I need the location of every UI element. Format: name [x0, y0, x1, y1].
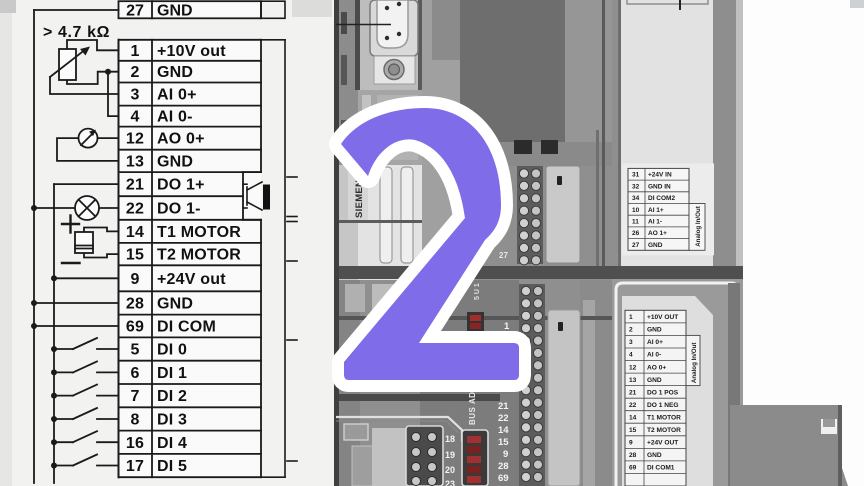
svg-text:9: 9: [503, 449, 508, 460]
svg-text:5 U 1: 5 U 1: [474, 283, 481, 300]
svg-text:27: 27: [632, 242, 640, 249]
svg-text:6: 6: [130, 365, 139, 382]
svg-text:+10V out: +10V out: [157, 43, 226, 60]
svg-text:DI COM: DI COM: [157, 319, 216, 336]
svg-text:21: 21: [629, 389, 637, 396]
svg-text:1: 1: [130, 43, 139, 60]
svg-text:DO 1 POS: DO 1 POS: [647, 389, 679, 396]
svg-text:69: 69: [126, 319, 144, 336]
svg-text:DO 1+: DO 1+: [157, 177, 205, 194]
svg-text:AO 0+: AO 0+: [157, 131, 205, 148]
svg-text:1: 1: [504, 321, 510, 332]
svg-text:DI COM1: DI COM1: [647, 465, 675, 472]
svg-text:AI 0-: AI 0-: [647, 352, 661, 359]
svg-text:DI 2: DI 2: [157, 388, 187, 405]
svg-text:14: 14: [498, 425, 509, 436]
svg-text:GND: GND: [157, 3, 193, 20]
svg-text:13: 13: [629, 377, 637, 384]
svg-text:23: 23: [445, 479, 455, 486]
svg-text:GND IN: GND IN: [648, 183, 671, 190]
svg-text:4: 4: [629, 352, 633, 359]
svg-text:21: 21: [126, 177, 144, 194]
svg-text:14: 14: [629, 415, 637, 422]
svg-text:GND: GND: [157, 296, 193, 313]
svg-text:32: 32: [632, 183, 640, 190]
svg-text:+24V OUT: +24V OUT: [647, 440, 678, 447]
svg-text:DI 0: DI 0: [157, 342, 187, 359]
svg-text:10: 10: [632, 207, 640, 214]
svg-text:28: 28: [498, 461, 509, 472]
svg-text:8: 8: [130, 412, 139, 429]
svg-text:22: 22: [498, 413, 509, 424]
svg-text:11: 11: [632, 218, 639, 225]
svg-text:DO 1-: DO 1-: [157, 201, 201, 218]
svg-text:2: 2: [130, 64, 139, 81]
svg-text:GND: GND: [647, 452, 662, 459]
svg-text:13: 13: [126, 154, 144, 171]
svg-text:20: 20: [445, 465, 455, 475]
svg-text:28: 28: [629, 452, 637, 459]
svg-text:15: 15: [498, 437, 509, 448]
svg-text:9: 9: [629, 440, 633, 447]
svg-text:GND: GND: [157, 64, 193, 81]
svg-text:15: 15: [629, 427, 637, 434]
svg-text:AI 0+: AI 0+: [157, 87, 197, 104]
svg-text:AI 1+: AI 1+: [648, 207, 664, 214]
svg-text:28: 28: [126, 296, 144, 313]
svg-text:3: 3: [629, 339, 633, 346]
svg-text:3: 3: [130, 87, 139, 104]
svg-text:Analog In/Out: Analog In/Out: [691, 343, 698, 384]
svg-text:19: 19: [445, 450, 455, 460]
svg-text:> 4.7 kΩ: > 4.7 kΩ: [43, 24, 110, 41]
svg-text:T1 MOTOR: T1 MOTOR: [157, 224, 241, 241]
svg-text:4: 4: [130, 109, 139, 126]
svg-text:27: 27: [126, 3, 144, 20]
svg-text:AO 0+: AO 0+: [647, 364, 666, 371]
svg-text:GND: GND: [647, 377, 662, 384]
svg-text:31: 31: [632, 172, 640, 179]
svg-text:69: 69: [498, 473, 509, 484]
svg-text:+10V OUT: +10V OUT: [647, 314, 678, 321]
svg-text:26: 26: [632, 230, 640, 237]
svg-text:15: 15: [126, 247, 144, 264]
svg-text:DI 1: DI 1: [157, 365, 187, 382]
svg-text:22: 22: [126, 201, 144, 218]
svg-text:T2 MOTOR: T2 MOTOR: [647, 427, 681, 434]
svg-text:DI 3: DI 3: [157, 412, 187, 429]
svg-text:5: 5: [130, 342, 139, 359]
svg-text:27: 27: [499, 251, 508, 260]
svg-text:GND: GND: [648, 242, 663, 249]
svg-text:+24V out: +24V out: [157, 271, 226, 288]
svg-text:T1 MOTOR: T1 MOTOR: [647, 415, 681, 422]
svg-text:22: 22: [629, 402, 637, 409]
svg-text:AO 1+: AO 1+: [648, 230, 667, 237]
svg-text:9: 9: [130, 271, 139, 288]
svg-text:GND: GND: [157, 154, 193, 171]
svg-text:GND: GND: [647, 327, 662, 334]
svg-text:DI 4: DI 4: [157, 435, 187, 452]
svg-text:BUS AD: BUS AD: [468, 392, 477, 425]
svg-text:34: 34: [632, 195, 640, 202]
svg-text:+24V IN: +24V IN: [648, 172, 672, 179]
svg-text:T2 MOTOR: T2 MOTOR: [157, 247, 241, 264]
svg-text:DI COM2: DI COM2: [648, 195, 675, 202]
svg-text:DI 5: DI 5: [157, 458, 187, 475]
svg-text:12: 12: [126, 131, 144, 148]
svg-text:AI 0-: AI 0-: [157, 109, 193, 126]
svg-text:1: 1: [629, 314, 633, 321]
svg-text:7: 7: [130, 388, 139, 405]
svg-text:18: 18: [445, 434, 455, 444]
svg-text:AI 0+: AI 0+: [647, 339, 663, 346]
svg-text:21: 21: [498, 401, 509, 412]
svg-text:69: 69: [629, 465, 637, 472]
svg-text:16: 16: [126, 435, 144, 452]
svg-text:12: 12: [629, 364, 637, 371]
svg-text:Analog In/Out: Analog In/Out: [695, 206, 702, 247]
svg-text:14: 14: [126, 224, 144, 241]
svg-text:DO 1 NEG: DO 1 NEG: [647, 402, 679, 409]
svg-text:2: 2: [629, 327, 633, 334]
svg-text:AI 1-: AI 1-: [648, 218, 662, 225]
svg-text:17: 17: [126, 458, 144, 475]
